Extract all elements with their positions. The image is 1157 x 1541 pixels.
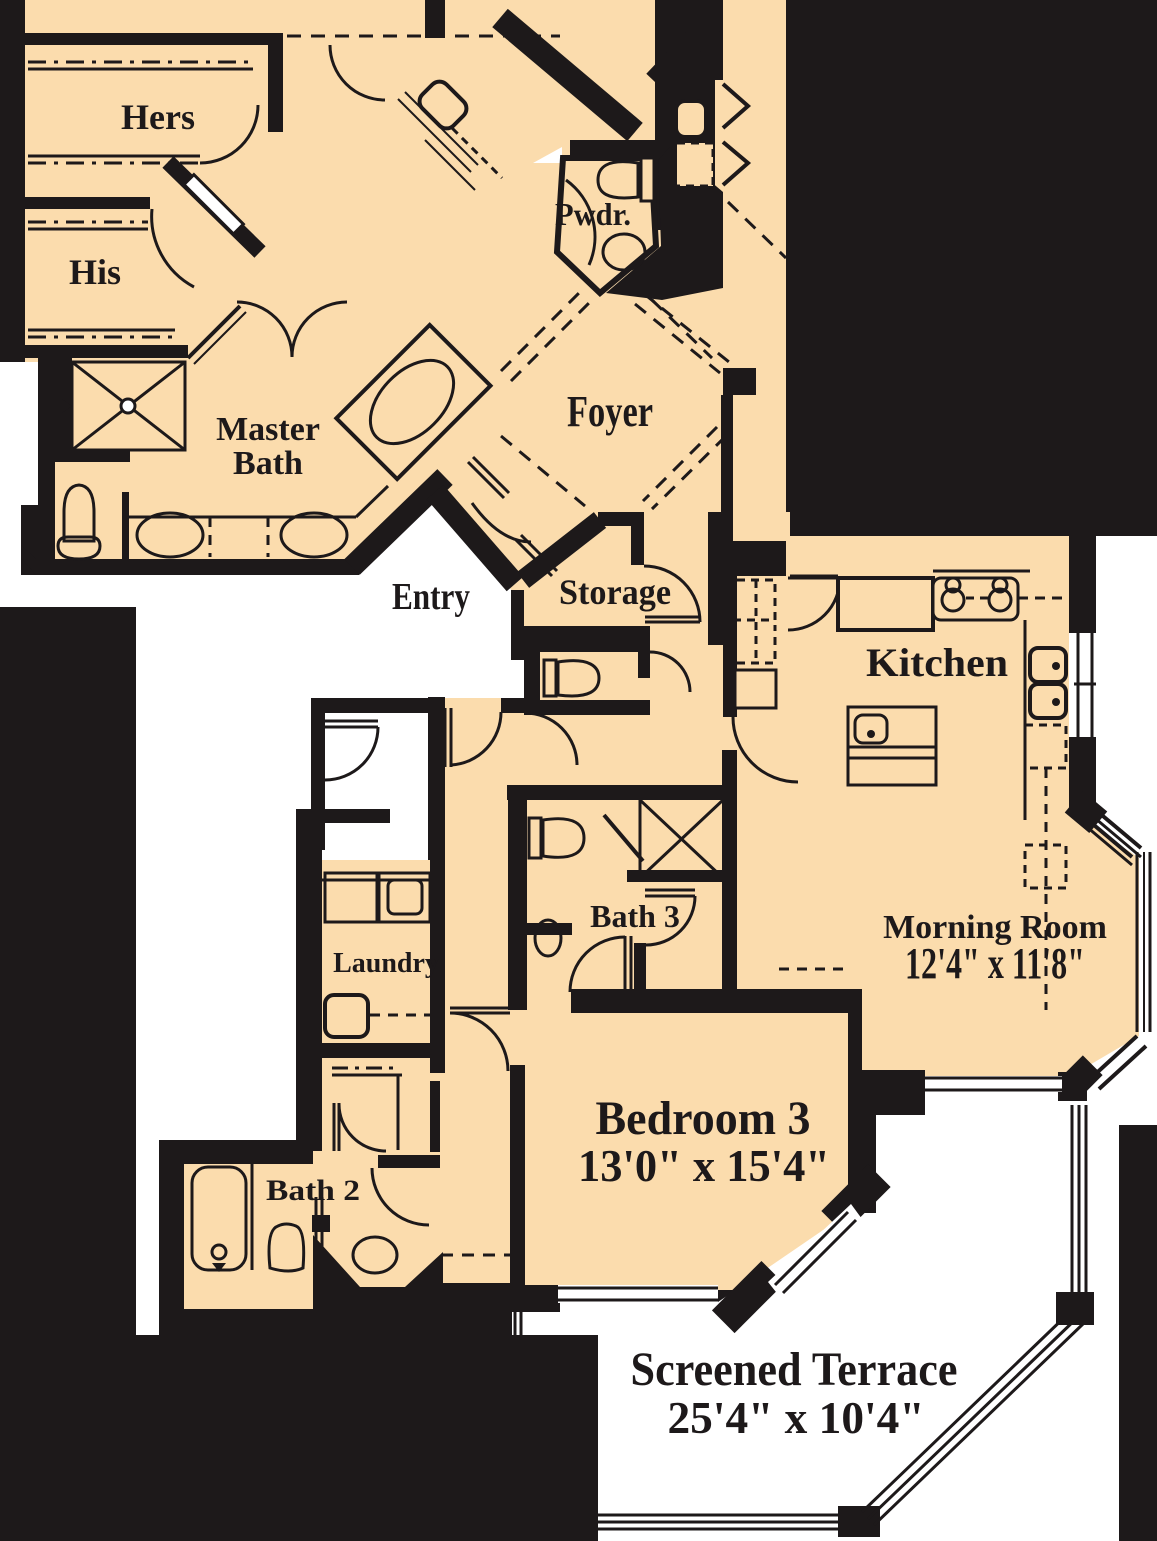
- svg-text:25'4" x 10'4": 25'4" x 10'4": [668, 1392, 925, 1443]
- svg-text:Hers: Hers: [121, 97, 195, 137]
- svg-text:13'0" x 15'4": 13'0" x 15'4": [578, 1140, 830, 1191]
- svg-text:12'4" x 11'8": 12'4" x 11'8": [905, 939, 1085, 988]
- svg-text:Kitchen: Kitchen: [866, 640, 1008, 685]
- svg-text:Master: Master: [216, 411, 320, 448]
- svg-text:Bedroom 3: Bedroom 3: [596, 1092, 811, 1145]
- svg-text:Storage: Storage: [559, 572, 671, 612]
- svg-text:His: His: [69, 252, 121, 292]
- svg-text:Entry: Entry: [392, 576, 470, 618]
- svg-text:Foyer: Foyer: [567, 387, 653, 436]
- svg-text:Bath: Bath: [233, 445, 303, 482]
- svg-text:Bath 3: Bath 3: [590, 898, 680, 934]
- svg-text:Laundry: Laundry: [333, 948, 439, 979]
- svg-text:Pwdr.: Pwdr.: [555, 196, 631, 232]
- svg-text:Bath 2: Bath 2: [266, 1174, 360, 1207]
- svg-text:Screened Terrace: Screened Terrace: [631, 1343, 958, 1396]
